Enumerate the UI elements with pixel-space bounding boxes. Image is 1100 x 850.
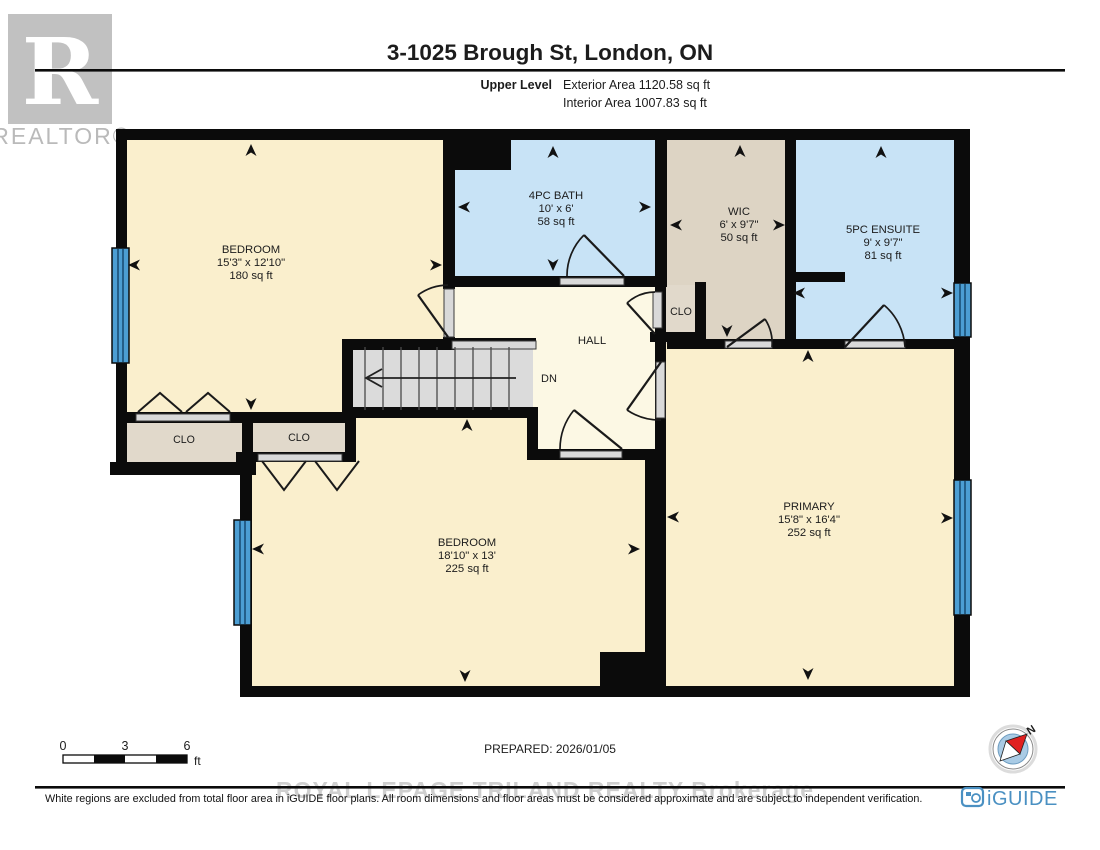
floorplan-page: R REALTOR® 3-1025 Brough St, London, ON … (0, 0, 1100, 850)
room-label-area: 58 sq ft (537, 216, 575, 228)
window-icon (112, 248, 129, 363)
prepared-date: PREPARED: 2026/01/05 (484, 742, 616, 756)
iguide-wordmark: iGUIDE (987, 788, 1058, 810)
room-bedroom-2-upper (350, 412, 530, 462)
scale-tick-3: 3 (122, 739, 129, 753)
page-title: 3-1025 Brough St, London, ON (387, 40, 713, 65)
stairs-dn-label: DN (541, 373, 557, 385)
room-label-area: 81 sq ft (864, 250, 902, 262)
room-label-dims: 15'3" x 12'10" (217, 257, 285, 269)
realtor-logo-r: R (22, 18, 99, 126)
window-icon (954, 480, 971, 615)
closet-label: CLO (670, 306, 692, 318)
exterior-area: Exterior Area 1120.58 sq ft (563, 78, 711, 92)
footer-disclaimer: White regions are excluded from total fl… (45, 793, 922, 805)
room-label-dims: 10' x 6' (538, 203, 573, 215)
window-icon (954, 283, 971, 337)
scale-tick-0: 0 (60, 739, 67, 753)
footer-rule (35, 786, 1065, 789)
closet-label: CLO (173, 434, 195, 446)
room-label-dims: 9' x 9'7" (863, 237, 902, 249)
realtor-logo-word: REALTOR® (0, 123, 132, 149)
hall-label: HALL (578, 335, 606, 347)
closet-label: CLO (288, 432, 310, 444)
room-label-name: BEDROOM (222, 244, 280, 256)
room-label-area: 252 sq ft (787, 527, 831, 539)
room-label-dims: 15'8" x 16'4" (778, 514, 840, 526)
room-label-dims: 6' x 9'7" (719, 219, 758, 231)
room-label-name: BEDROOM (438, 537, 496, 549)
header-rule (35, 69, 1065, 72)
interior-area: Interior Area 1007.83 sq ft (563, 96, 707, 110)
scale-tick-6: 6 (184, 739, 191, 753)
room-label-name: 5PC ENSUITE (846, 224, 921, 236)
scale-unit: ft (194, 754, 201, 768)
level-label: Upper Level (480, 78, 552, 92)
room-label-dims: 18'10" x 13' (438, 550, 496, 562)
room-label-area: 180 sq ft (229, 270, 273, 282)
room-label-name: PRIMARY (783, 501, 835, 513)
window-icon (234, 520, 251, 625)
compass-icon: N (990, 723, 1038, 772)
room-label-area: 50 sq ft (720, 232, 758, 244)
realtor-logo: R REALTOR® (0, 14, 132, 149)
floorplan-svg: R REALTOR® 3-1025 Brough St, London, ON … (0, 0, 1100, 850)
room-label-name: WIC (728, 206, 750, 218)
room-label-area: 225 sq ft (445, 563, 489, 575)
iguide-logo: iGUIDE (962, 788, 1058, 810)
scale-bar: 0 3 6 ft (60, 739, 202, 768)
room-label-name: 4PC BATH (529, 190, 583, 202)
